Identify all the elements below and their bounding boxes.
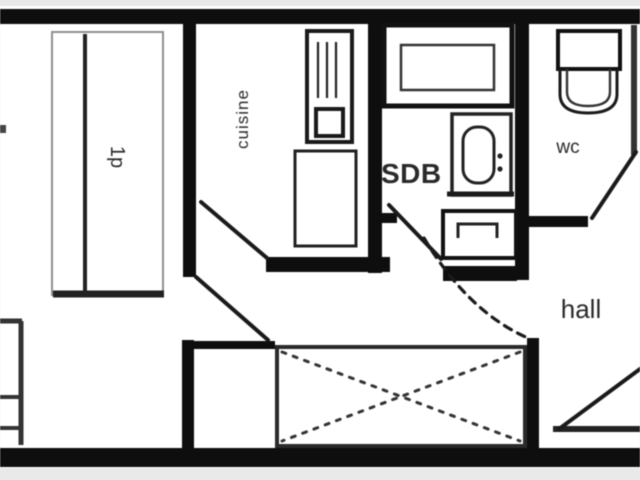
wall-kitchen-bottom xyxy=(266,257,390,272)
wall-right-edge xyxy=(631,25,637,155)
washing-machine xyxy=(443,211,516,258)
faucet-dot-2 xyxy=(497,166,502,171)
hall-label: hall xyxy=(561,294,601,324)
wall-wc-bottom xyxy=(529,216,588,227)
closet xyxy=(277,347,525,446)
bed-label: 1p xyxy=(106,146,128,168)
wall-lower-left xyxy=(182,340,194,450)
wc-label: wc xyxy=(555,137,579,158)
wall-kitchen-right xyxy=(368,20,382,273)
kitchen-label: cuisine xyxy=(233,89,252,149)
wall-hall-closet xyxy=(527,338,539,450)
bathroom-label: SDB xyxy=(381,158,442,189)
wall-bottom xyxy=(0,448,640,467)
wall-closet-left-top xyxy=(182,341,275,349)
wall-kitchen-left xyxy=(183,22,196,277)
kitchen-counter xyxy=(295,151,356,246)
cut-label-mark xyxy=(0,125,6,133)
entry-door-threshold xyxy=(553,426,640,432)
faucet-dot-1 xyxy=(497,153,502,158)
toilet-tank xyxy=(558,31,620,69)
wall-bathroom-door-stub xyxy=(382,213,397,223)
wall-top xyxy=(0,9,640,24)
floor-plan: 1p cuisine SDB xyxy=(0,0,640,480)
floor-plan-image: 1p cuisine SDB xyxy=(0,0,640,480)
